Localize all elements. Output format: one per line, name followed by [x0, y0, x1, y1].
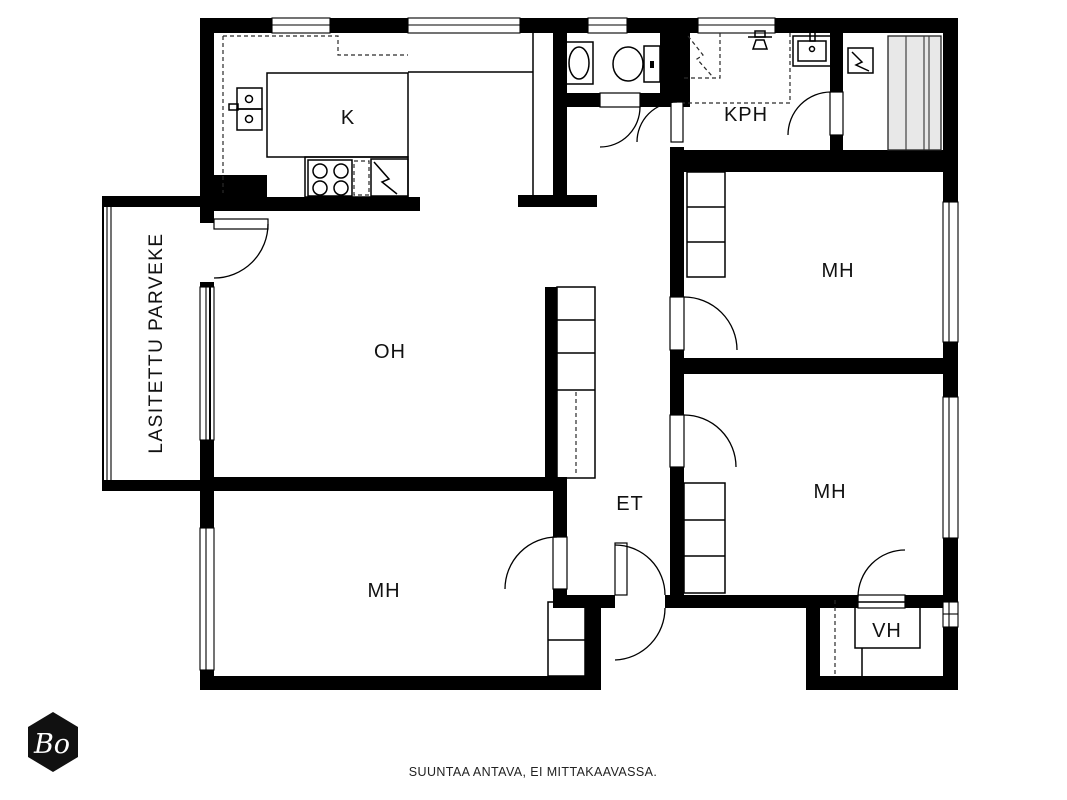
wc-door	[600, 93, 640, 147]
vh-door	[858, 550, 905, 608]
room-label-bedroom-bottom-left: MH	[367, 580, 400, 602]
refrigerator-icon	[371, 159, 408, 196]
window-vh-vent	[943, 602, 958, 627]
room-label-entrance-hall: ET	[616, 493, 644, 515]
window-bedroom-top-right	[943, 202, 958, 342]
floor-plan-page: K KPH MH OH MH ET MH VH LASITETTU PARVEK…	[0, 0, 1067, 800]
wardrobe-bedroom-bottom-left	[548, 602, 585, 676]
entrance-door	[615, 543, 665, 660]
sauna-door	[788, 92, 843, 135]
logo-text: Bo	[33, 729, 70, 760]
room-label-living-room: OH	[374, 341, 406, 363]
windows	[200, 18, 958, 670]
window-hall-wide	[408, 18, 520, 33]
bedroom-mid-right-door	[670, 415, 736, 467]
window-balcony	[200, 287, 214, 440]
shower-icon	[683, 31, 790, 103]
kitchen-sink-icon	[229, 88, 262, 130]
bedroom-bottom-left-door	[505, 537, 567, 589]
stove-icon	[308, 160, 352, 196]
wc-fixtures	[558, 42, 660, 84]
sauna-heater-icon	[848, 48, 873, 73]
dishwasher-icon	[354, 161, 369, 195]
window-bedroom-bottom-left	[200, 528, 214, 670]
toilet-icon	[613, 46, 660, 82]
window-kitchen	[272, 18, 330, 33]
sauna-fixtures	[848, 36, 941, 150]
window-bedroom-mid-right	[943, 397, 958, 538]
room-label-bedroom-top-right: MH	[821, 260, 854, 282]
et-closet	[557, 287, 595, 478]
floor-plan-svg: K KPH MH OH MH ET MH VH LASITETTU PARVEK…	[0, 0, 1067, 800]
bathroom-sink-icon	[793, 28, 831, 66]
walls	[200, 18, 958, 690]
disclaimer-text: SUUNTAA ANTAVA, EI MITTAKAAVASSA.	[409, 765, 657, 779]
window-wc	[588, 18, 627, 33]
wardrobe-bedroom-mid-right	[684, 483, 725, 593]
room-label-kitchen: K	[341, 107, 355, 129]
kitchen-island	[267, 73, 408, 157]
balcony-door	[200, 219, 268, 282]
brand-logo: Bo	[28, 712, 78, 772]
kph-fixtures	[683, 28, 831, 103]
balcony-label: LASITETTU PARVEKE	[146, 232, 167, 453]
room-label-bedroom-mid-right: MH	[813, 481, 846, 503]
room-label-bathroom: KPH	[724, 104, 768, 126]
wardrobe-bedroom-top-right	[687, 172, 725, 277]
bedroom-top-right-door	[670, 297, 737, 350]
sauna-benches	[888, 36, 941, 150]
room-label-walk-in-closet: VH	[872, 620, 902, 642]
kph-door	[637, 102, 683, 142]
kitchen-fixtures	[223, 33, 533, 197]
